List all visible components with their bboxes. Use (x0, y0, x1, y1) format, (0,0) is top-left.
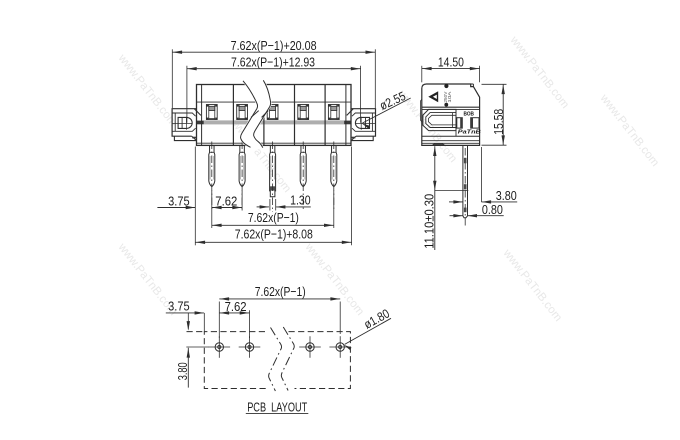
svg-text:15.58: 15.58 (491, 109, 506, 135)
svg-text:7.62x(P−1)+20.08: 7.62x(P−1)+20.08 (231, 38, 317, 53)
svg-text:PaTnB: PaTnB (458, 130, 482, 136)
svg-text:0.80: 0.80 (482, 202, 503, 217)
svg-text:3.80: 3.80 (175, 362, 190, 380)
svg-text:7.62x(P−1): 7.62x(P−1) (255, 284, 306, 299)
svg-text:10A: 10A (447, 90, 452, 102)
svg-text:7.62x(P−1): 7.62x(P−1) (248, 210, 299, 225)
svg-text:PCB LAYOUT: PCB LAYOUT (247, 399, 307, 414)
svg-text:14.50: 14.50 (438, 55, 464, 70)
svg-text:BOB: BOB (463, 111, 474, 117)
svg-text:11.10±0.30: 11.10±0.30 (421, 194, 436, 249)
svg-text:7.62: 7.62 (215, 193, 237, 208)
svg-text:3.75: 3.75 (168, 299, 190, 314)
svg-text:7.62x(P−1)+12.93: 7.62x(P−1)+12.93 (231, 55, 315, 70)
svg-text:3.80: 3.80 (496, 188, 517, 203)
svg-text:1.30: 1.30 (290, 193, 311, 208)
svg-text:7.62x(P−1)+8.08: 7.62x(P−1)+8.08 (235, 227, 313, 242)
